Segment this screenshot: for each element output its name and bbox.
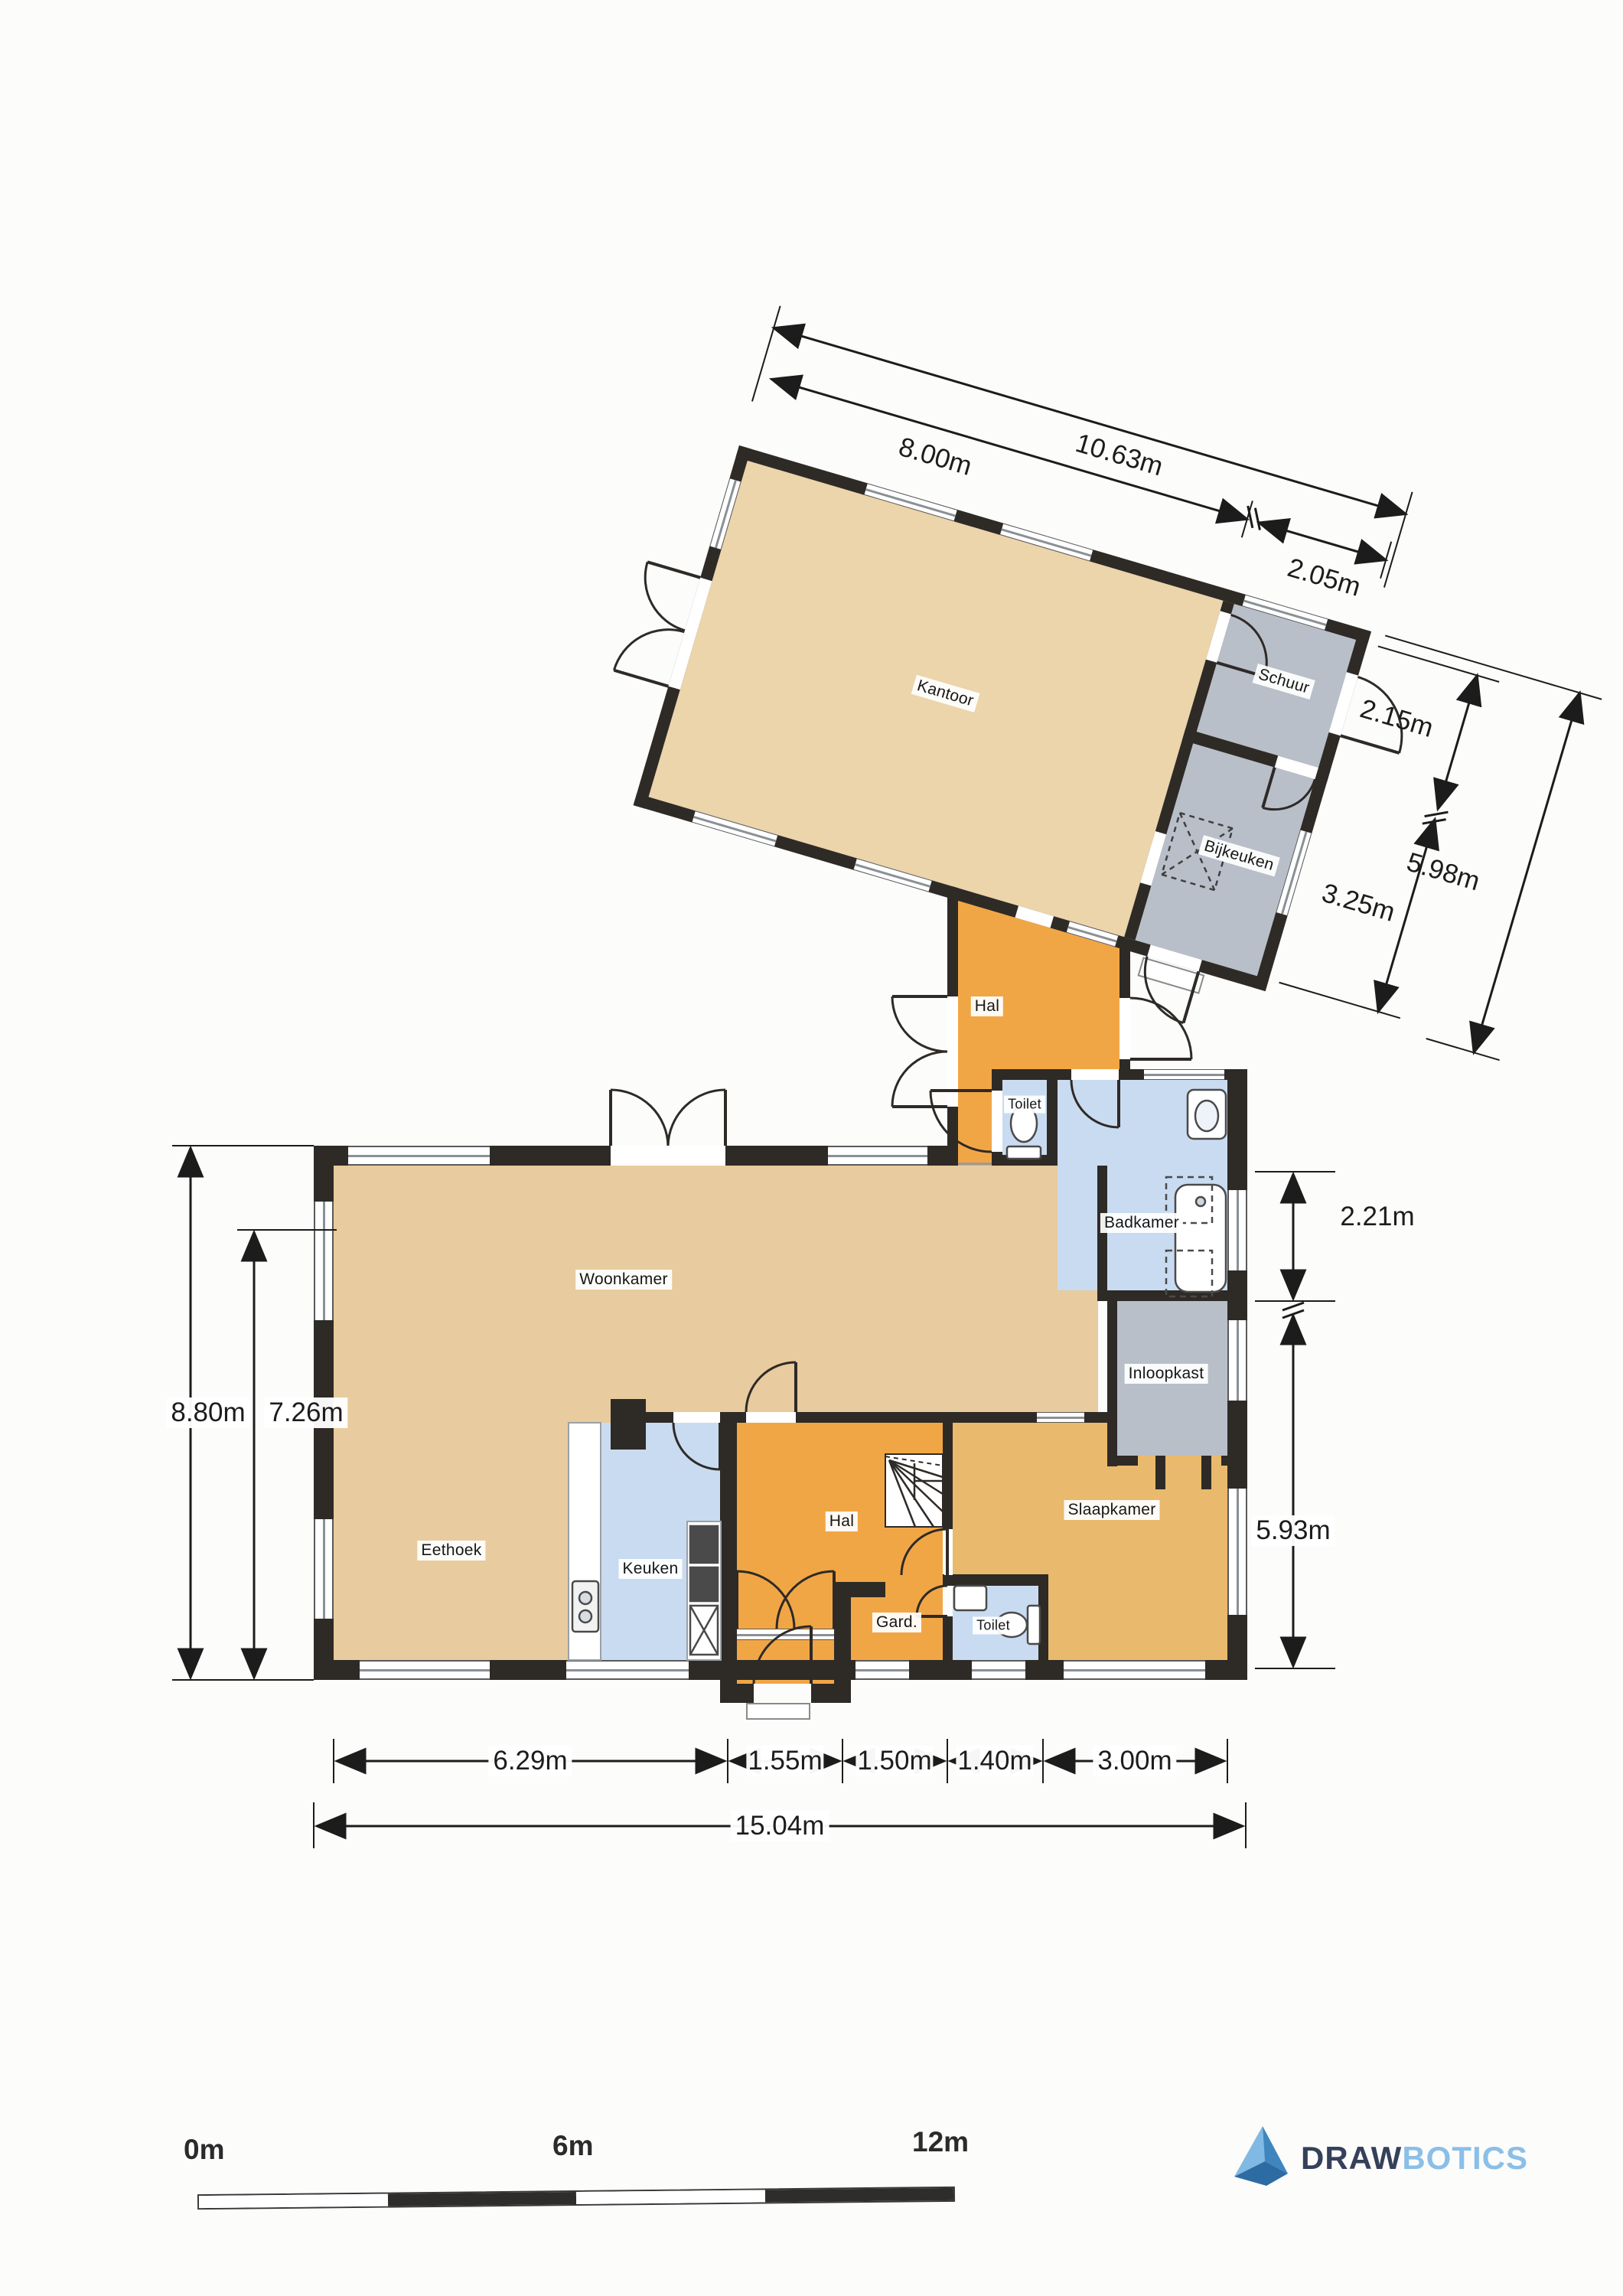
window xyxy=(1064,1660,1205,1680)
label-slaapkamer: Slaapkamer xyxy=(1064,1500,1159,1520)
floorplan-page: Kantoor Schuur Bijkeuken 10.63m 8.00m 2.… xyxy=(0,0,1623,2296)
wall xyxy=(834,1582,885,1597)
label-eethoek: Eethoek xyxy=(417,1541,485,1561)
scalebar-label-end: 12m xyxy=(912,2126,969,2158)
logo-draw: DRAW xyxy=(1301,2140,1402,2176)
dim-right-schuur: 2.15m xyxy=(1352,692,1441,745)
scale-bar-segment xyxy=(199,2194,388,2209)
entry-step xyxy=(746,1703,810,1720)
label-woonkamer: Woonkamer xyxy=(575,1270,672,1290)
scale-bar xyxy=(197,2187,955,2210)
label-badkamer: Badkamer xyxy=(1100,1213,1183,1233)
door-gap xyxy=(992,1091,1002,1152)
window xyxy=(1227,1489,1247,1615)
wall xyxy=(1047,1080,1058,1166)
door-gap xyxy=(673,1412,720,1423)
dim-right-total: 5.98m xyxy=(1399,846,1488,899)
wall xyxy=(1107,1456,1138,1466)
dim-bottom-total: 15.04m xyxy=(731,1811,829,1841)
door-gap xyxy=(1071,1069,1119,1080)
room-slaapkamer-lower xyxy=(1048,1586,1227,1660)
label-keuken: Keuken xyxy=(618,1559,682,1579)
dim-left-inner: 7.26m xyxy=(264,1397,347,1428)
door-gap xyxy=(1119,998,1130,1059)
room-woonkamer xyxy=(334,1166,1098,1423)
scalebar-label-middle: 6m xyxy=(552,2130,593,2162)
window xyxy=(566,1660,689,1680)
door-gap xyxy=(944,1529,953,1575)
room-keuken xyxy=(569,1423,720,1660)
room-toilet-boven xyxy=(1002,1080,1047,1166)
window xyxy=(828,1146,927,1166)
wall xyxy=(720,1684,754,1703)
window xyxy=(360,1660,490,1680)
scale-bar-segment xyxy=(576,2190,765,2204)
scalebar-label-start: 0m xyxy=(184,2134,224,2166)
label-gard: Gard. xyxy=(872,1613,921,1632)
scale-bar-segment xyxy=(387,2192,576,2206)
wall xyxy=(1038,1586,1048,1660)
wall xyxy=(992,1155,1058,1166)
interior-glass-door xyxy=(737,1629,834,1640)
rotated-outbuilding: Kantoor Schuur Bijkeuken 10.63m 8.00m 2.… xyxy=(634,445,1371,991)
window xyxy=(1037,1412,1084,1423)
wall xyxy=(1107,1301,1117,1466)
label-hal-beneden: Hal xyxy=(826,1512,858,1531)
wall xyxy=(943,1616,953,1660)
dim-top-kantoor: 8.00m xyxy=(891,430,979,483)
dim-top-total: 10.63m xyxy=(1067,426,1171,484)
label-toilet-beneden: Toilet xyxy=(973,1617,1014,1635)
label-toilet-boven: Toilet xyxy=(1004,1096,1045,1114)
wall xyxy=(720,1423,737,1691)
dim-right-badkamer: 2.21m xyxy=(1335,1202,1419,1232)
room-hal-beneden xyxy=(733,1423,943,1582)
floor-transition-line xyxy=(958,1163,992,1165)
dim-right-slaapkamer: 5.93m xyxy=(1251,1515,1335,1546)
wall xyxy=(1097,1290,1247,1301)
window xyxy=(1144,1069,1224,1080)
drawbotics-pyramid-icon xyxy=(1228,2122,1297,2198)
dim-bottom-eethoek: 6.29m xyxy=(488,1746,572,1776)
window xyxy=(855,1660,909,1680)
scale-bar-segment xyxy=(764,2188,953,2203)
window xyxy=(1227,1190,1247,1270)
door-gap xyxy=(947,1052,958,1107)
window xyxy=(314,1202,334,1320)
dim-bottom-slaapkamer: 3.00m xyxy=(1093,1746,1176,1776)
chimney-block xyxy=(611,1399,646,1450)
wall xyxy=(811,1684,851,1703)
wall xyxy=(1201,1456,1211,1489)
logo-wordmark: DRAWBOTICS xyxy=(1301,2140,1528,2177)
window xyxy=(972,1660,1025,1680)
logo-botics: BOTICS xyxy=(1402,2140,1528,2176)
entrance-door-gap xyxy=(611,1146,725,1166)
wall xyxy=(720,1412,746,1423)
dim-bottom-hal: 1.55m xyxy=(746,1746,823,1776)
wall xyxy=(646,1412,673,1423)
wall xyxy=(1221,1456,1227,1466)
wall xyxy=(1155,1456,1165,1489)
window xyxy=(1227,1320,1247,1401)
wall xyxy=(943,1418,953,1529)
dim-top-schuur: 2.05m xyxy=(1279,551,1368,604)
dim-bottom-gard: 1.50m xyxy=(855,1746,933,1776)
door-gap xyxy=(746,1412,796,1423)
label-hal-boven: Hal xyxy=(971,996,1003,1016)
wall xyxy=(943,1574,1048,1586)
window xyxy=(314,1519,334,1619)
door-gap xyxy=(947,996,958,1052)
dim-left-outer: 8.80m xyxy=(166,1397,249,1428)
label-inloopkast: Inloopkast xyxy=(1125,1364,1208,1384)
dim-bottom-toilet: 1.40m xyxy=(956,1746,1033,1776)
room-badkamer xyxy=(1058,1080,1227,1290)
dim-right-bijkeuken: 3.25m xyxy=(1314,876,1403,929)
window xyxy=(348,1146,490,1166)
